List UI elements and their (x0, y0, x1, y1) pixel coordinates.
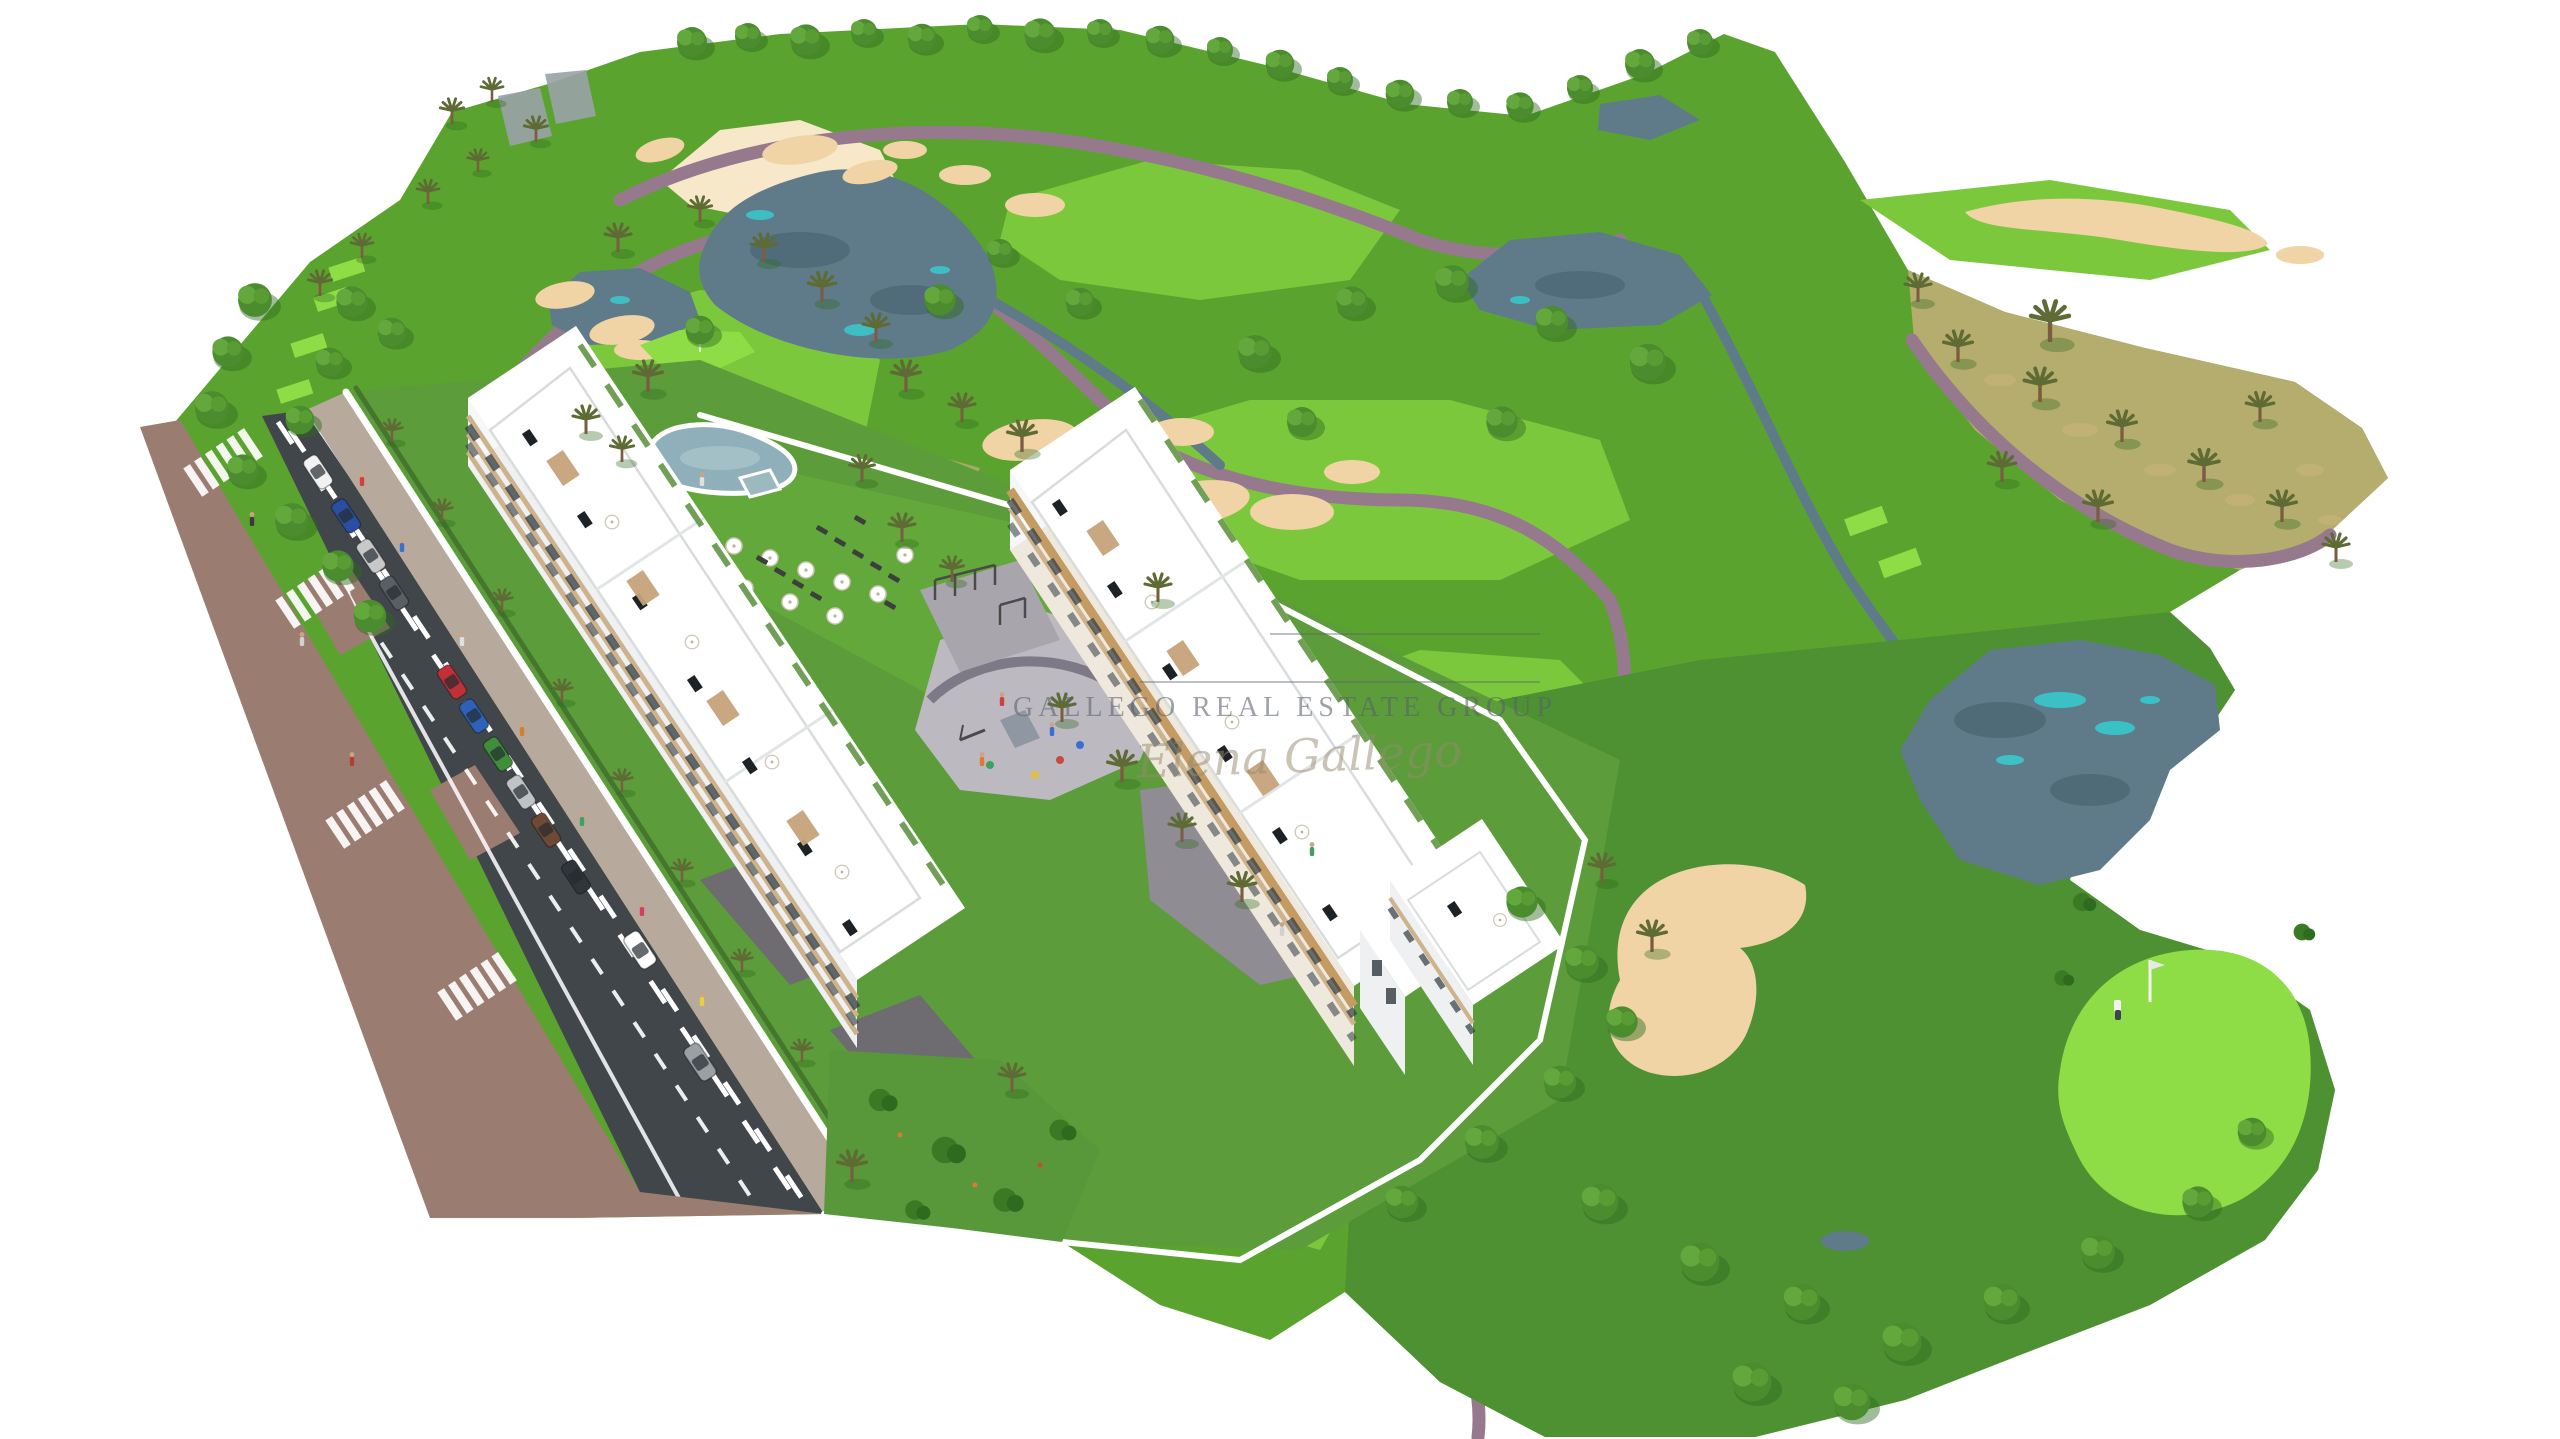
aerial-render: GALLEGO REAL ESTATE GROUP Elena Gallego (0, 0, 2560, 1439)
small-pond (1821, 1231, 1869, 1251)
screenshot-canvas: GALLEGO REAL ESTATE GROUP Elena Gallego (0, 0, 2560, 1439)
watermark-signature-text: Elena Gallego (1135, 723, 1463, 788)
watermark-brand-text: GALLEGO REAL ESTATE GROUP (1013, 692, 1557, 723)
golfer-figure (2114, 1000, 2121, 1020)
